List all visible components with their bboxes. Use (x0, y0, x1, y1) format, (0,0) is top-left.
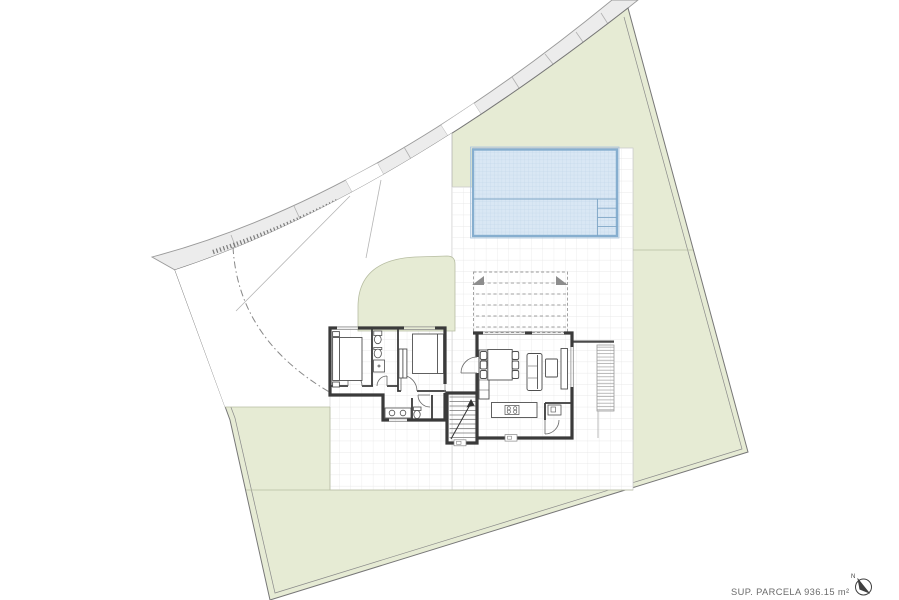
swimming-pool (471, 147, 620, 238)
stair-landing-marker (454, 440, 466, 446)
bed-2 (413, 334, 444, 374)
nightstand-1b (333, 382, 340, 387)
bed-1 (333, 338, 362, 381)
chair (512, 371, 519, 379)
chair (480, 361, 487, 369)
cooktop-burner (514, 410, 517, 413)
chair (480, 352, 487, 360)
toilet-cistern-2 (414, 407, 422, 411)
toilet-2 (414, 411, 420, 419)
chair (480, 371, 487, 379)
cooktop-burner (507, 407, 510, 410)
site-plan-canvas: SUP. PARCELA 936.15 m² N (0, 0, 899, 600)
cooktop-burner (514, 407, 517, 410)
coffee-table (546, 359, 558, 377)
deck-louvers (597, 345, 614, 411)
chair (512, 352, 519, 360)
south-wall-vent-inner (508, 436, 512, 439)
tv-bench (561, 349, 568, 390)
bedroom-2 (413, 334, 444, 374)
toilet-cistern-1 (374, 331, 382, 336)
pantry-boiler-inner (551, 407, 556, 412)
shower-drain (378, 365, 380, 367)
pool-tile-grid (473, 150, 617, 237)
toilet-1 (374, 335, 381, 343)
chair (512, 361, 519, 369)
sink-1 (374, 349, 381, 358)
bathroom-2 (385, 407, 421, 419)
bedroom-1 (333, 332, 362, 387)
nightstand-1a (333, 332, 340, 337)
cooktop-burner (507, 410, 510, 413)
cooktop (505, 406, 519, 415)
sink-2b (400, 410, 406, 416)
north-arrow: N (851, 574, 872, 595)
site-plan-drawing: SUP. PARCELA 936.15 m² N (0, 0, 899, 600)
wardrobe (399, 349, 407, 378)
area-label: SUP. PARCELA 936.15 m² (731, 587, 850, 597)
north-arrow-label: N (851, 574, 855, 580)
dining-table (488, 350, 512, 381)
sink-2a (389, 410, 395, 416)
sofa (527, 354, 542, 391)
